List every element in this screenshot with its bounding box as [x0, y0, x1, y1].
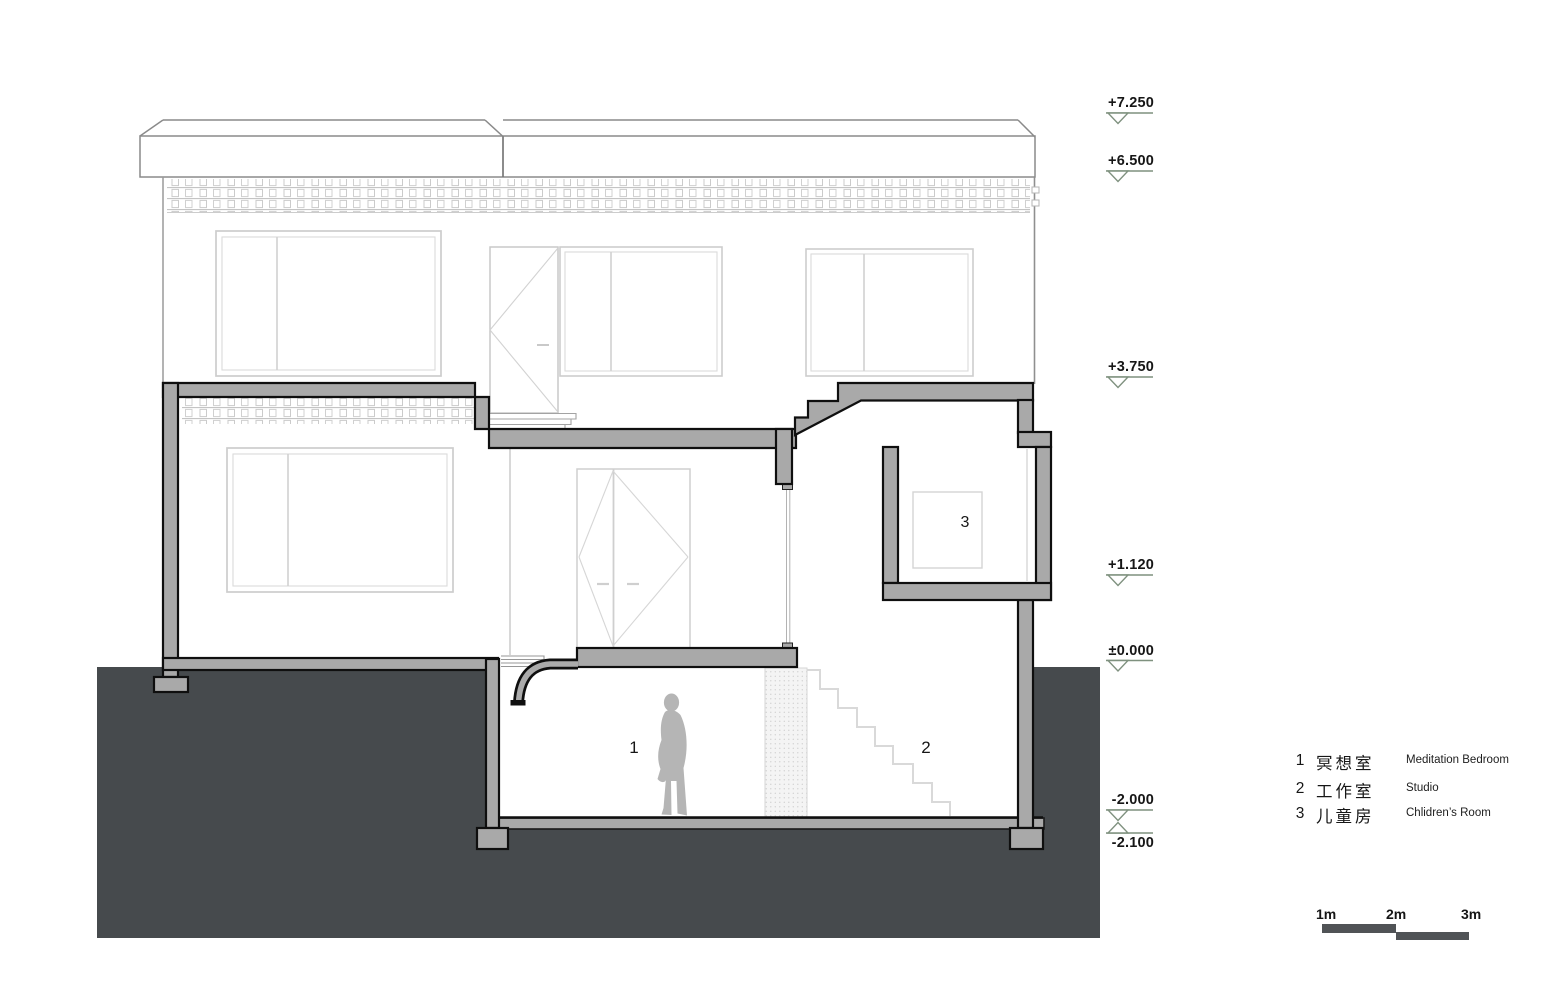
- footing-left: [154, 677, 188, 692]
- architectural-section-canvas: +7.250 +6.500 +3.750 +1.120 ±0.000 -2.00…: [0, 0, 1565, 1000]
- elevation-label-7250: +7.250: [1092, 95, 1154, 112]
- basement-floor-slab: [487, 818, 1044, 830]
- legend-number: 1: [1292, 752, 1308, 770]
- room3-wall-right: [1036, 447, 1051, 600]
- footing-basement-left: [477, 828, 508, 849]
- elevation-label-0000: ±0.000: [1092, 643, 1154, 660]
- cut-slab-entry: [577, 648, 797, 667]
- section-drawing: [0, 0, 1565, 1000]
- cut-slab-ground-left: [163, 658, 498, 670]
- room-label-3: 3: [954, 514, 976, 532]
- room3-wall-left: [883, 447, 898, 583]
- cut-wall-right: [1018, 600, 1033, 828]
- window-room-left: [227, 448, 453, 592]
- cut-pier: [776, 429, 792, 484]
- elevation-label-m2100: -2.100: [1092, 835, 1154, 852]
- legend-en-label: Meditation Bedroom: [1406, 754, 1565, 766]
- cut-wall-left: [163, 383, 178, 677]
- cut-wall-basement-left: [486, 659, 499, 828]
- landing-steps: [488, 414, 576, 431]
- brick-nub: [1032, 200, 1039, 206]
- brick-band-upper: [167, 179, 1030, 213]
- glass-block-wall: [765, 668, 807, 818]
- scale-label-1m: 1m: [1316, 906, 1346, 922]
- door-glazed-middle: [577, 469, 690, 648]
- legend-number: 2: [1292, 780, 1308, 798]
- scale-bar-segment-2: [1396, 932, 1469, 940]
- elevation-label-3750: +3.750: [1092, 359, 1154, 376]
- room-label-2: 2: [915, 738, 937, 758]
- elevation-marker-symbols: [1106, 113, 1153, 833]
- window-upper-middle: [560, 247, 722, 376]
- scale-label-2m: 2m: [1386, 906, 1416, 922]
- room3-roof-band: [795, 383, 1033, 435]
- elevation-label-m2000: -2.000: [1092, 792, 1154, 809]
- basement-interior: [498, 656, 1018, 818]
- legend-number: 3: [1292, 805, 1308, 823]
- window-upper-left: [216, 231, 441, 376]
- room3-sill: [1018, 432, 1051, 447]
- room-label-1: 1: [623, 738, 645, 758]
- brick-nub: [1032, 187, 1039, 193]
- window-upper-right: [806, 249, 973, 376]
- scale-label-3m: 3m: [1461, 906, 1491, 922]
- legend-en-label: Studio: [1406, 782, 1565, 794]
- scale-bar-segment-1: [1322, 924, 1396, 933]
- room3-wall-upper-right: [1018, 400, 1033, 433]
- room3-floor-band: [883, 583, 1051, 600]
- roof-parapet: [140, 120, 1035, 177]
- hanging-rod: [783, 484, 793, 649]
- elevation-label-6500: +6.500: [1092, 153, 1154, 170]
- footing-right: [1010, 828, 1043, 849]
- legend-en-label: Chlidren’s Room: [1406, 807, 1565, 819]
- door-upper-middle: [490, 247, 558, 413]
- elevation-label-1120: +1.120: [1092, 557, 1154, 574]
